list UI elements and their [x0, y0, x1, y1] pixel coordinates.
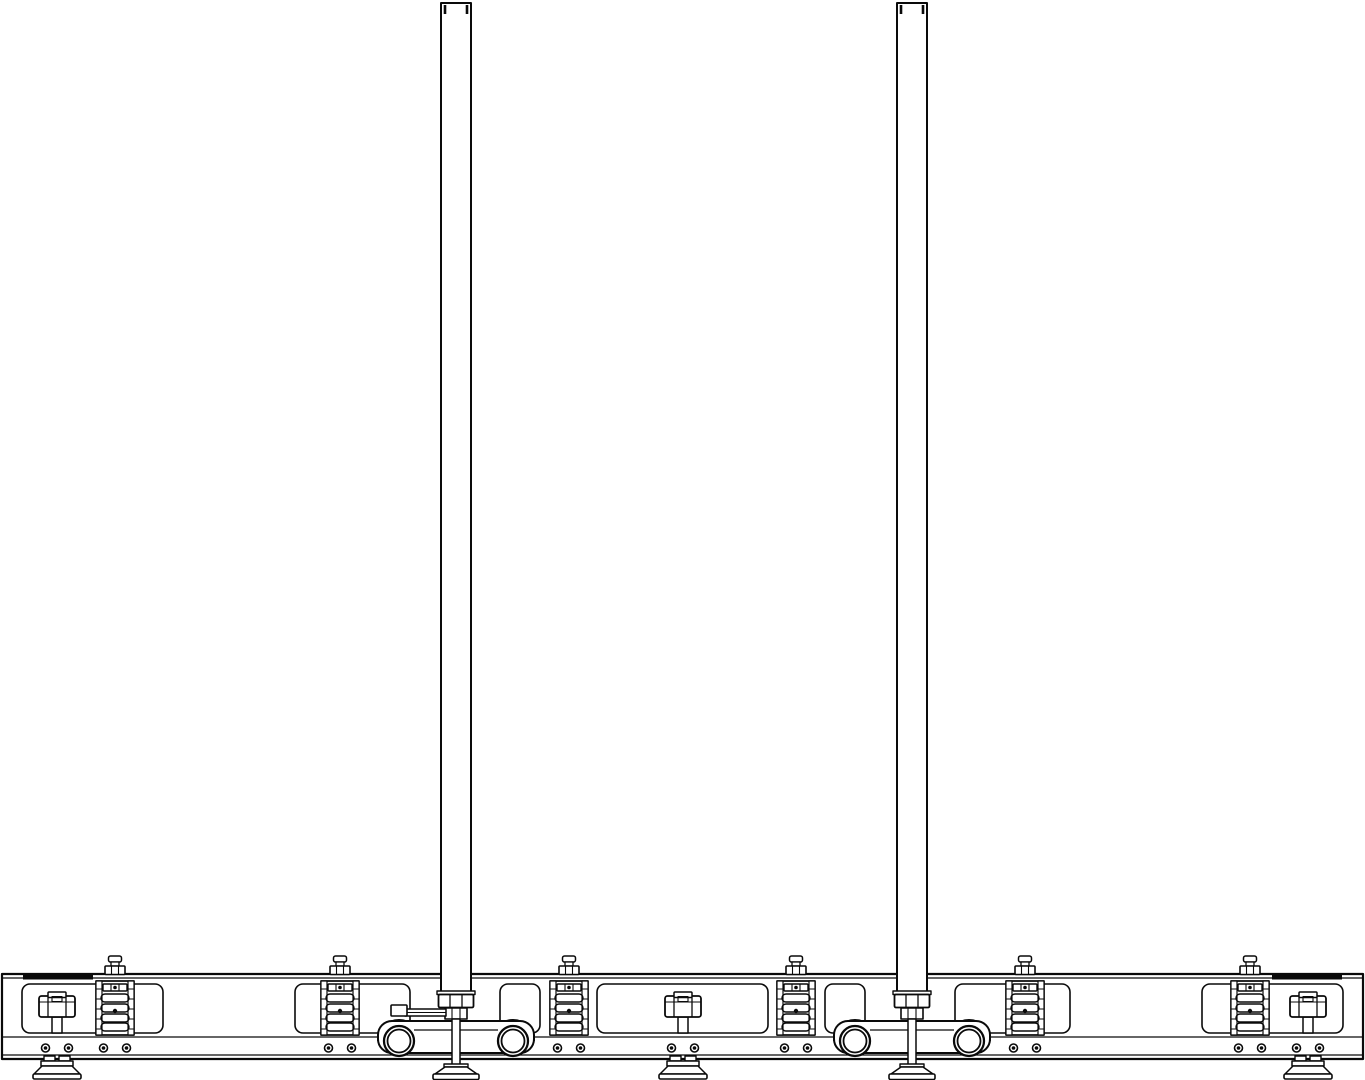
- spring-stack-1: [96, 981, 134, 1035]
- spring-stack-4: [777, 981, 815, 1035]
- bolt-hole: [577, 1044, 585, 1052]
- stack-pin: [338, 986, 342, 990]
- spring-stack-6: [1231, 981, 1269, 1035]
- roller-wheel: [840, 1026, 870, 1056]
- vertical-post-left: [441, 3, 471, 993]
- leveling-foot-left-post-foot: [433, 1064, 479, 1080]
- bolt-hole: [781, 1044, 789, 1052]
- stack-pin: [338, 1009, 342, 1013]
- spring-stack-3: [550, 981, 588, 1035]
- bolt-hole: [123, 1044, 131, 1052]
- leveling-foot-right-post-foot: [889, 1064, 935, 1080]
- bolt-hole: [1293, 1044, 1301, 1052]
- spring-stack-5: [1006, 981, 1044, 1035]
- spring-stack-bolt-1: [105, 956, 125, 975]
- bolt-hole: [65, 1044, 73, 1052]
- beam-end-plate-left: [23, 975, 93, 980]
- stack-pin: [113, 986, 117, 990]
- bolt-hole: [1235, 1044, 1243, 1052]
- spring-stack-bolt-6: [1240, 956, 1260, 975]
- roller-wheel: [384, 1026, 414, 1056]
- stack-pin: [794, 1009, 798, 1013]
- bolt-hole: [1258, 1044, 1266, 1052]
- cad-drawing-canvas: [0, 0, 1365, 1080]
- bolt-hole: [325, 1044, 333, 1052]
- stack-pin: [1023, 986, 1027, 990]
- roller-wheel: [498, 1026, 528, 1056]
- bolt-hole: [554, 1044, 562, 1052]
- stack-pin: [794, 986, 798, 990]
- assembly-drawing: [0, 0, 1365, 1080]
- stack-pin: [1248, 1009, 1252, 1013]
- spring-stack-bolt-3: [559, 956, 579, 975]
- bolt-hole: [804, 1044, 812, 1052]
- bolt-hole: [42, 1044, 50, 1052]
- stack-pin: [1023, 1009, 1027, 1013]
- bolt-hole: [348, 1044, 356, 1052]
- bolt-hole: [668, 1044, 676, 1052]
- bolt-hole: [691, 1044, 699, 1052]
- spring-stack-2: [321, 981, 359, 1035]
- vertical-post-right: [897, 3, 927, 993]
- stack-pin: [567, 986, 571, 990]
- bolt-hole: [100, 1044, 108, 1052]
- roller-wheel: [954, 1026, 984, 1056]
- spring-stack-bolt-2: [330, 956, 350, 975]
- bolt-hole: [1316, 1044, 1324, 1052]
- stack-pin: [113, 1009, 117, 1013]
- bolt-hole: [1010, 1044, 1018, 1052]
- stack-pin: [567, 1009, 571, 1013]
- bolt-hole: [1033, 1044, 1041, 1052]
- stack-pin: [1248, 986, 1252, 990]
- spring-stack-bolt-5: [1015, 956, 1035, 975]
- spring-stack-bolt-4: [786, 956, 806, 975]
- beam-end-plate-right: [1272, 975, 1342, 980]
